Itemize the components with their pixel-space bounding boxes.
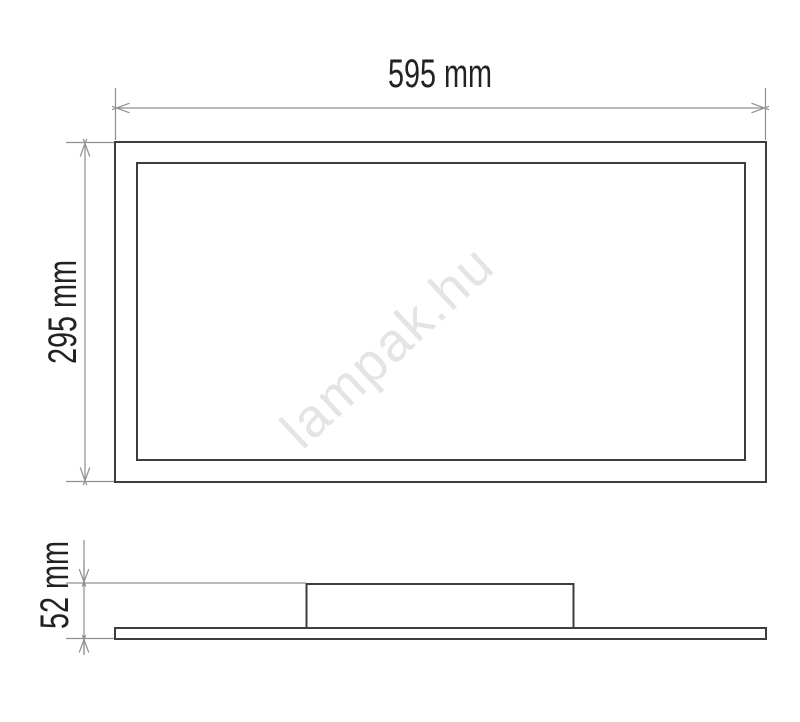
width-dimension-label: 595 mm	[388, 51, 492, 96]
dimension-drawing-canvas: lampak.hu	[0, 0, 800, 722]
panel-side-driver-box	[307, 584, 574, 628]
panel-outlines-group	[115, 142, 766, 639]
dimension-drawing: lampak.hu	[0, 0, 800, 722]
dimension-lines-group	[66, 88, 766, 655]
thickness-dimension-label: 52 mm	[32, 541, 77, 629]
watermark-text: lampak.hu	[270, 234, 506, 460]
panel-side-profile	[115, 628, 766, 639]
height-dimension-label: 295 mm	[40, 260, 85, 364]
